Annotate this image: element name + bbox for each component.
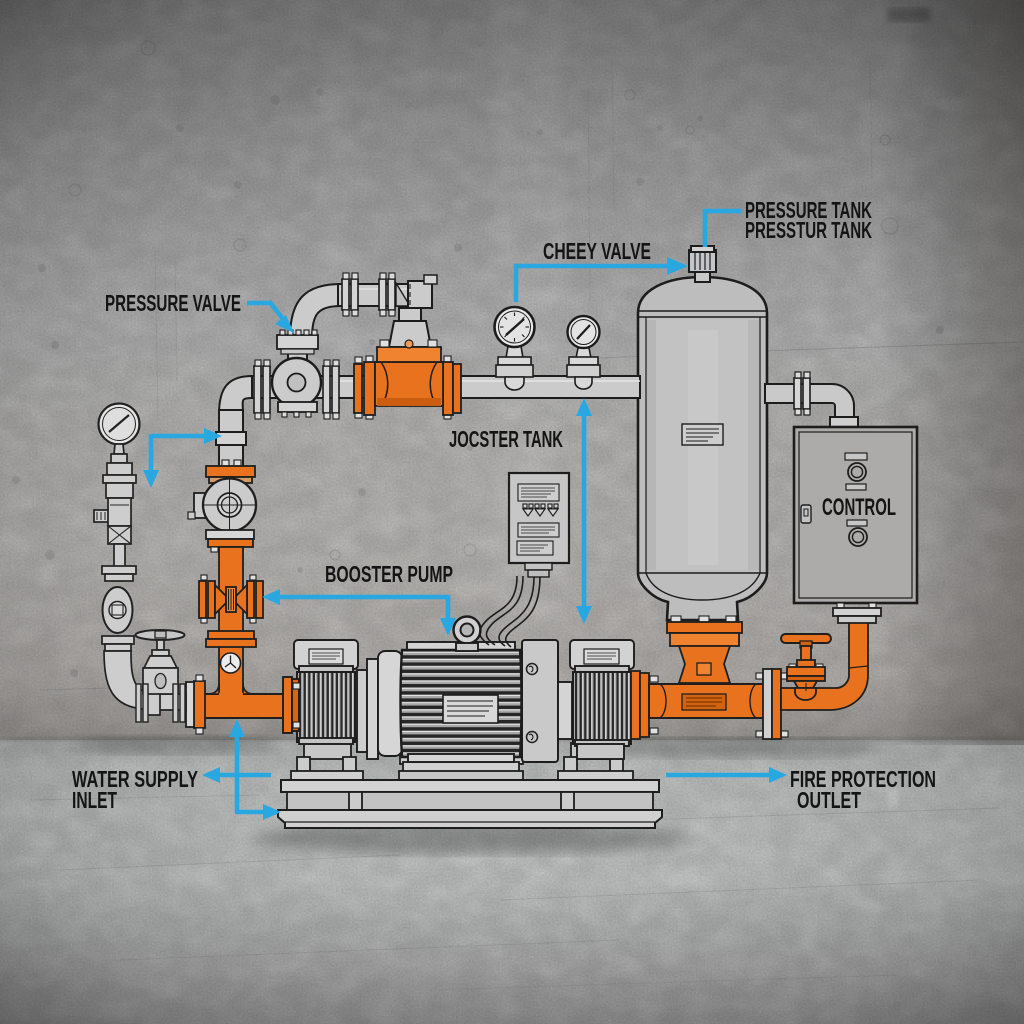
svg-text:JOCSTER TANK: JOCSTER TANK (449, 426, 563, 452)
svg-text:BOOSTER PUMP: BOOSTER PUMP (325, 561, 453, 587)
svg-text:CONTROL: CONTROL (822, 494, 896, 521)
svg-text:OUTLET: OUTLET (797, 787, 861, 813)
svg-text:INLET: INLET (72, 787, 117, 813)
svg-text:CHEEY VALVE: CHEEY VALVE (543, 238, 651, 264)
svg-text:PRESSURE VALVE: PRESSURE VALVE (105, 290, 241, 316)
svg-text:PRESSTUR TANK: PRESSTUR TANK (745, 217, 872, 243)
